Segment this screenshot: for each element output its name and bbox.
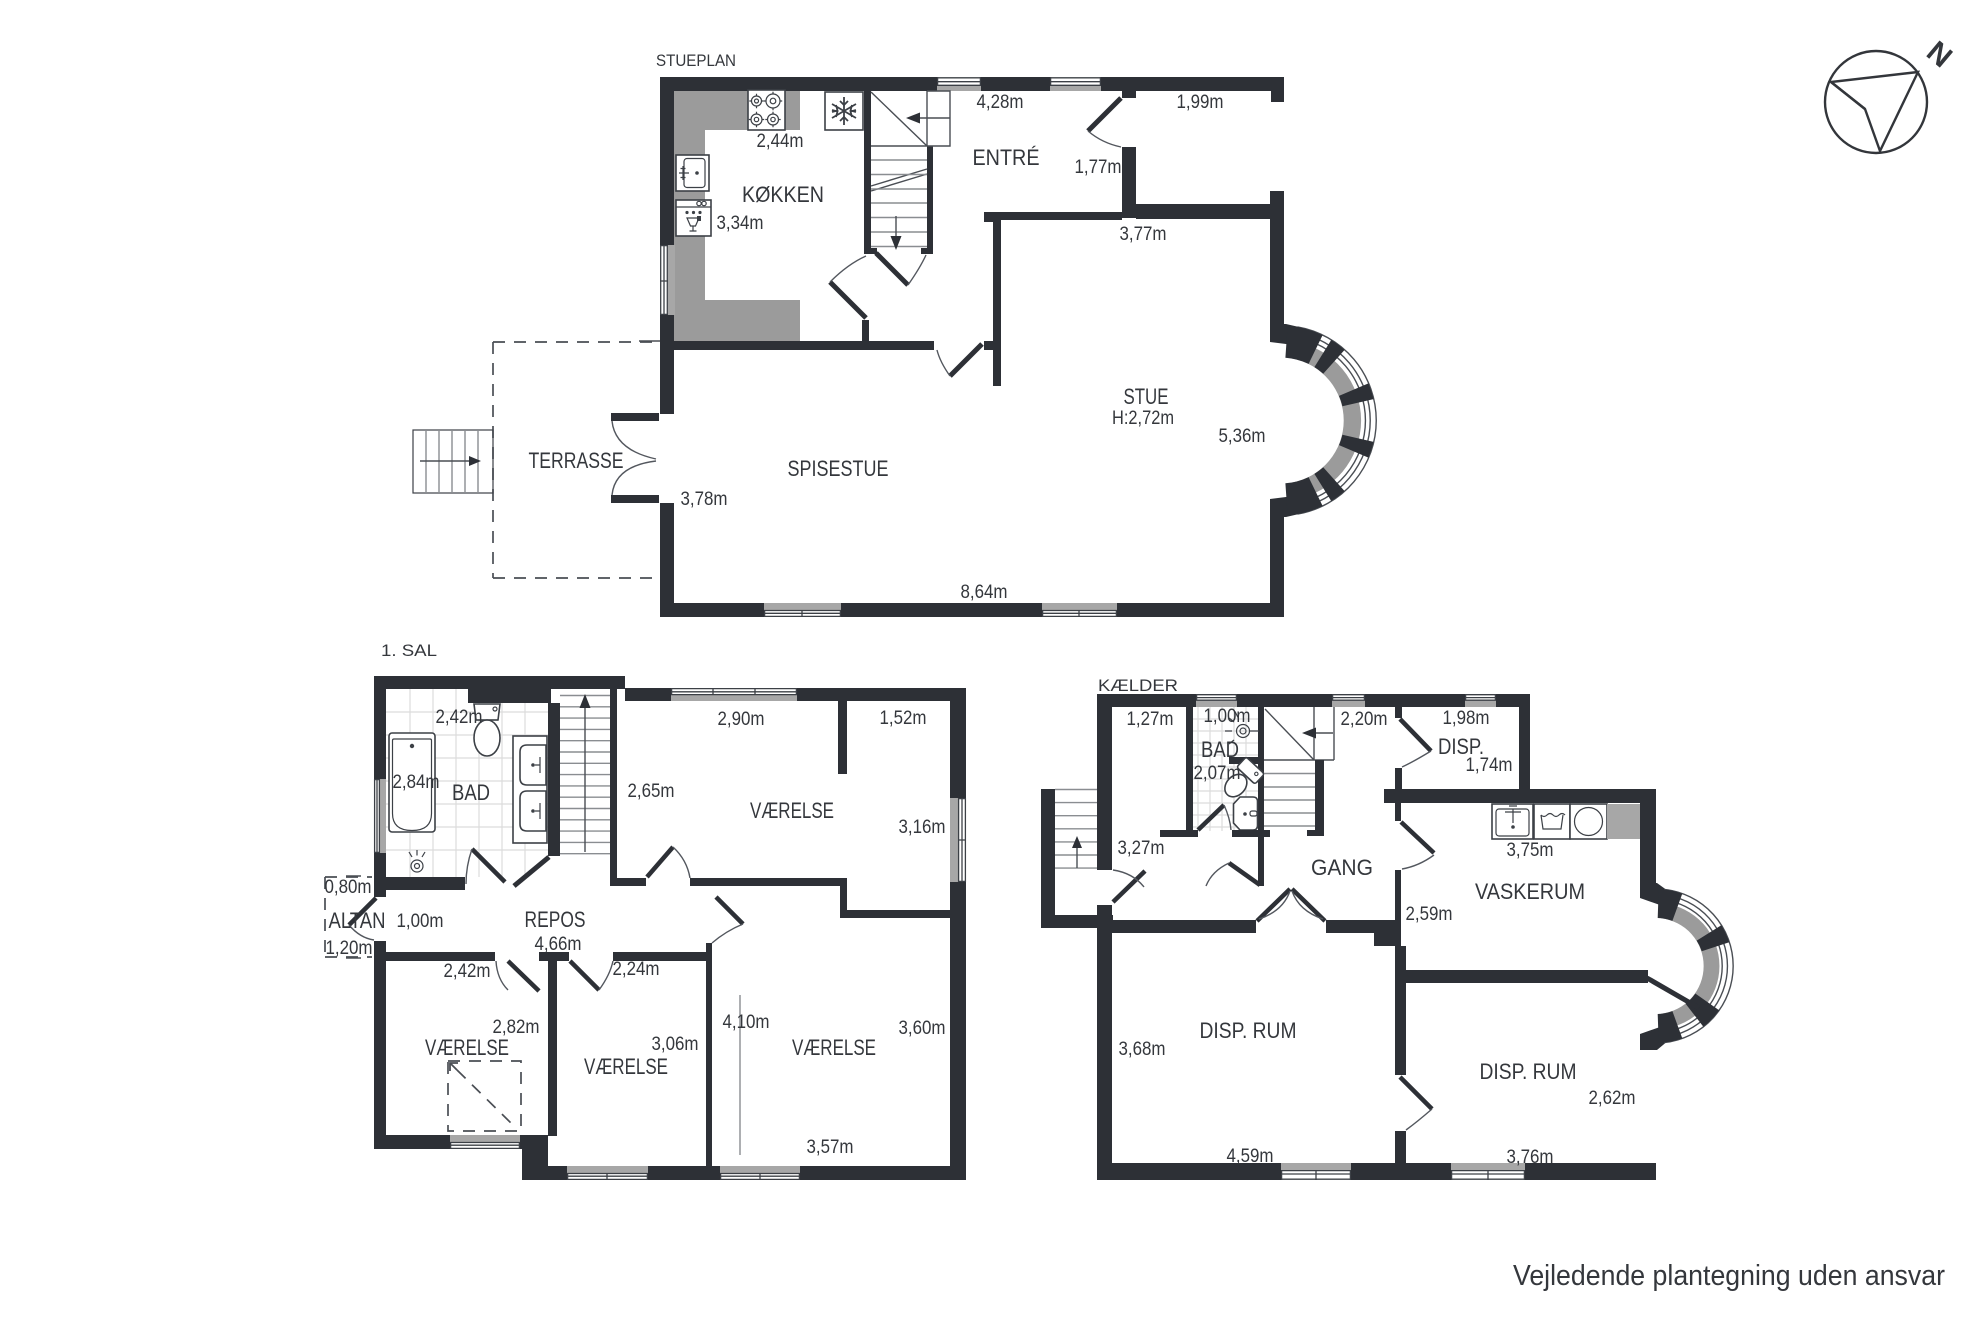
svg-text:4,59m: 4,59m [1227,1146,1274,1167]
svg-text:VÆRELSE: VÆRELSE [584,1054,668,1079]
svg-text:VASKERUM: VASKERUM [1475,879,1585,904]
svg-text:1. SAL: 1. SAL [381,641,437,660]
svg-text:4,66m: 4,66m [535,934,582,955]
svg-text:2,62m: 2,62m [1589,1088,1636,1109]
svg-text:3,27m: 3,27m [1118,838,1165,859]
svg-text:1,77m: 1,77m [1075,157,1122,178]
svg-text:1,74m: 1,74m [1466,755,1513,776]
svg-text:STUE: STUE [1124,384,1169,409]
svg-text:2,90m: 2,90m [718,709,765,730]
svg-text:1,99m: 1,99m [1177,92,1224,113]
svg-text:2,07m: 2,07m [1194,763,1241,784]
svg-text:DISP. RUM: DISP. RUM [1480,1059,1577,1084]
svg-text:1,00m: 1,00m [1204,706,1251,727]
svg-text:VÆRELSE: VÆRELSE [425,1035,509,1060]
svg-text:KØKKEN: KØKKEN [742,182,824,207]
svg-text:4,10m: 4,10m [723,1012,770,1033]
svg-text:5,36m: 5,36m [1219,426,1266,447]
svg-text:3,68m: 3,68m [1119,1039,1166,1060]
svg-text:2,44m: 2,44m [757,131,804,152]
svg-text:2,59m: 2,59m [1406,904,1453,925]
svg-text:REPOS: REPOS [525,907,586,932]
svg-text:8,64m: 8,64m [961,582,1008,603]
svg-text:3,60m: 3,60m [899,1018,946,1039]
svg-text:DISP. RUM: DISP. RUM [1200,1018,1297,1043]
svg-text:1,52m: 1,52m [880,708,927,729]
svg-text:GANG: GANG [1311,855,1373,880]
svg-text:H:2,72m: H:2,72m [1112,408,1174,429]
svg-text:1,20m: 1,20m [326,938,373,959]
svg-text:BAD: BAD [1201,737,1239,762]
svg-text:3,06m: 3,06m [652,1034,699,1055]
svg-text:2,84m: 2,84m [393,772,440,793]
svg-text:1,27m: 1,27m [1127,709,1174,730]
svg-text:4,28m: 4,28m [977,92,1024,113]
svg-text:3,34m: 3,34m [717,213,764,234]
svg-text:3,77m: 3,77m [1120,224,1167,245]
svg-text:BAD: BAD [452,780,490,805]
svg-text:2,24m: 2,24m [613,959,660,980]
svg-text:STUEPLAN: STUEPLAN [656,51,736,70]
svg-text:2,42m: 2,42m [436,707,483,728]
svg-text:ALTAN: ALTAN [329,908,386,933]
svg-text:1,00m: 1,00m [397,911,444,932]
svg-text:KÆLDER: KÆLDER [1098,676,1178,695]
svg-text:2,65m: 2,65m [628,781,675,802]
svg-text:2,20m: 2,20m [1341,709,1388,730]
svg-text:3,57m: 3,57m [807,1137,854,1158]
svg-text:3,78m: 3,78m [681,489,728,510]
svg-text:3,75m: 3,75m [1507,840,1554,861]
svg-text:0,80m: 0,80m [325,877,372,898]
svg-text:N: N [1920,35,1958,74]
svg-text:2,42m: 2,42m [444,961,491,982]
svg-text:1,98m: 1,98m [1443,708,1490,729]
svg-text:ENTRÉ: ENTRÉ [973,145,1040,170]
svg-text:3,76m: 3,76m [1507,1147,1554,1168]
svg-text:Vejledende plantegning uden an: Vejledende plantegning uden ansvar [1513,1260,1945,1292]
svg-text:VÆRELSE: VÆRELSE [750,798,834,823]
svg-text:TERRASSE: TERRASSE [529,448,624,473]
svg-text:VÆRELSE: VÆRELSE [792,1035,876,1060]
svg-text:SPISESTUE: SPISESTUE [788,456,889,481]
svg-text:3,16m: 3,16m [899,817,946,838]
